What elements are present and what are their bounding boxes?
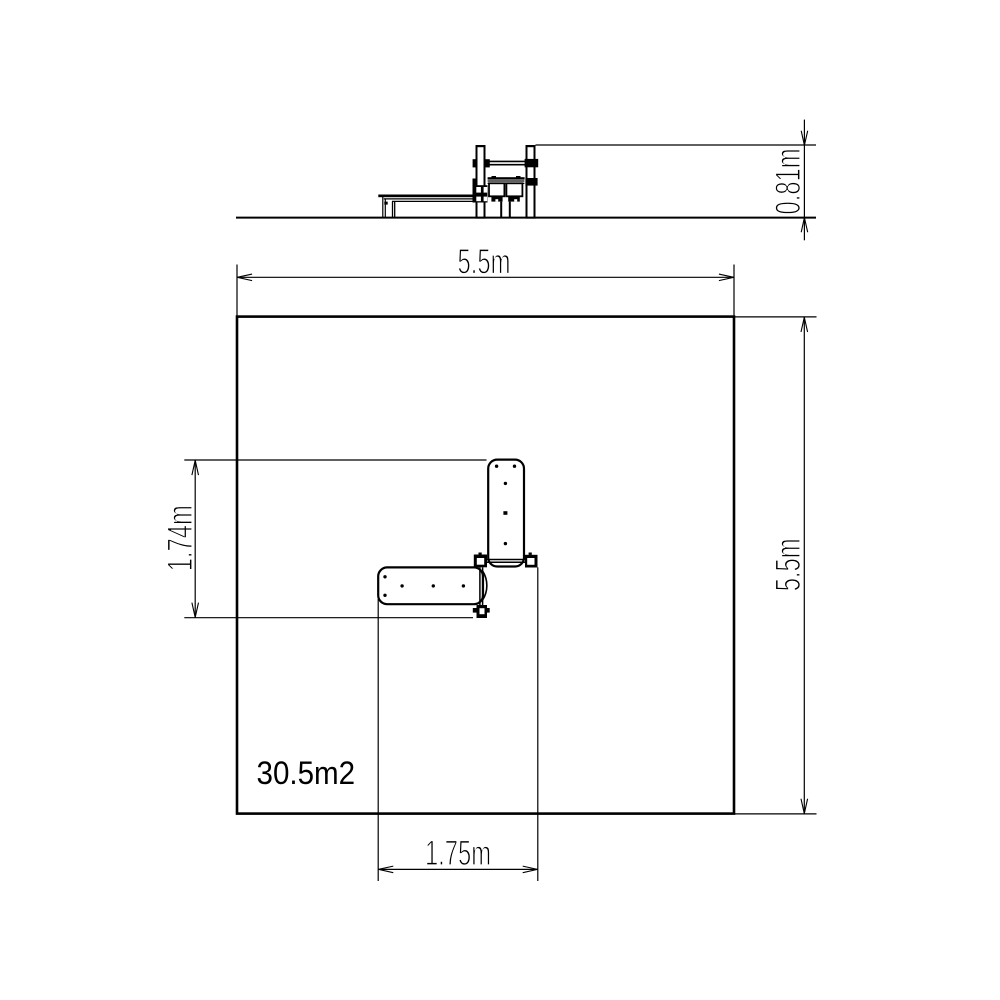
svg-text:30.5m2: 30.5m2: [257, 755, 356, 792]
svg-text:5.5m: 5.5m: [770, 538, 809, 591]
svg-text:5.5m: 5.5m: [458, 243, 511, 282]
svg-text:1.74m: 1.74m: [162, 505, 201, 571]
svg-text:1.75m: 1.75m: [425, 834, 491, 873]
svg-text:0.81m: 0.81m: [770, 148, 809, 214]
